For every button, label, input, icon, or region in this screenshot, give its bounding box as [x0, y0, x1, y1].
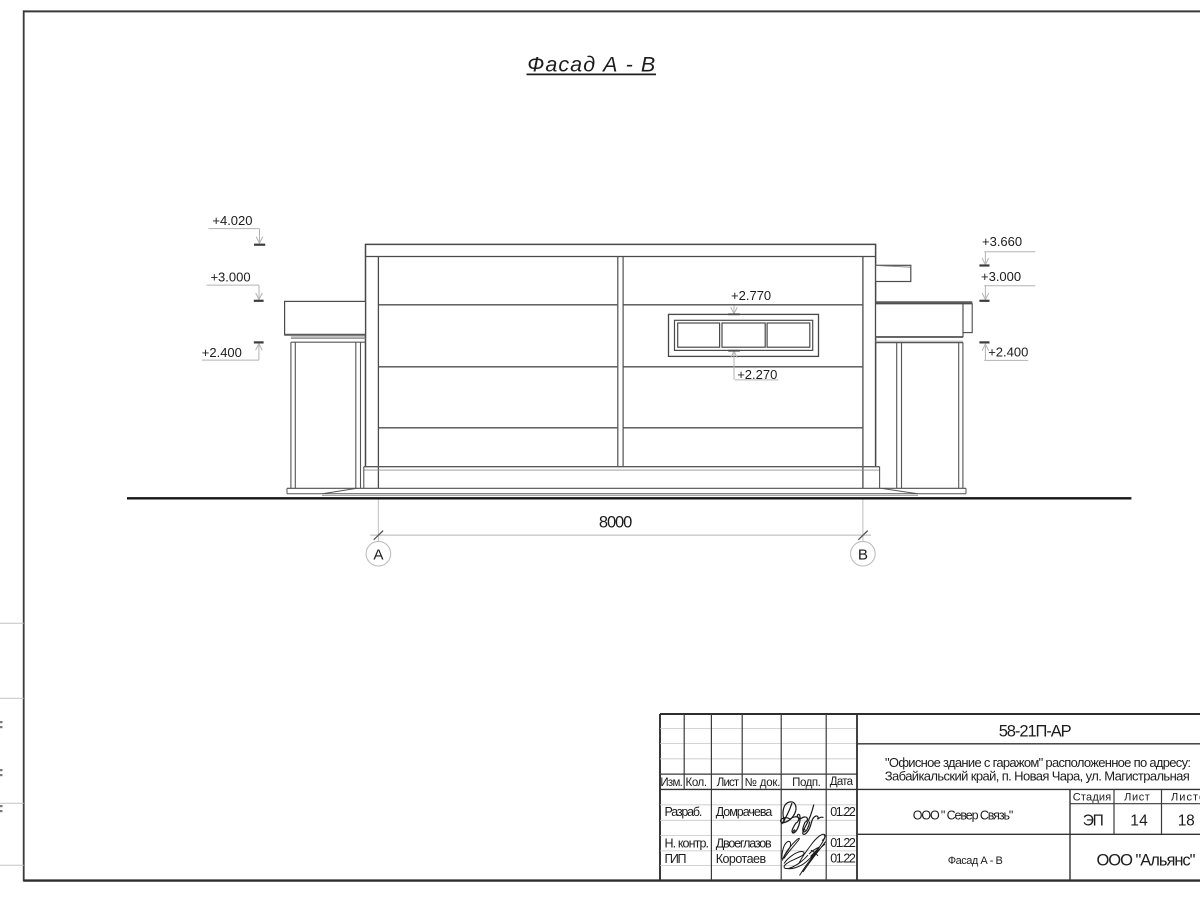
svg-text:ГИП: ГИП — [665, 852, 687, 866]
svg-text:01.22: 01.22 — [830, 851, 856, 865]
svg-text:58-21П-АР: 58-21П-АР — [999, 723, 1072, 741]
svg-text:+2.400: +2.400 — [988, 344, 1028, 359]
svg-text:Разраб.: Разраб. — [665, 805, 703, 819]
svg-text:Изм.: Изм. — [660, 777, 682, 789]
svg-text:Лист: Лист — [717, 777, 740, 789]
svg-text:В: В — [858, 546, 868, 563]
svg-text:ЭП: ЭП — [1083, 813, 1104, 830]
svg-text:18: 18 — [1178, 813, 1195, 830]
svg-text:01.22: 01.22 — [830, 836, 856, 850]
svg-text:Домрачева: Домрачева — [716, 805, 773, 819]
svg-text:01.22: 01.22 — [830, 805, 856, 819]
svg-text:+4.020: +4.020 — [212, 213, 252, 228]
svg-text:Подп.: Подп. — [792, 777, 821, 789]
svg-text:Стадия: Стадия — [1073, 792, 1112, 804]
svg-text:№ док.: № док. — [745, 777, 781, 789]
svg-text:Фасад А - В: Фасад А - В — [527, 53, 655, 77]
svg-text:Фасад А - В: Фасад А - В — [948, 855, 1003, 867]
svg-text:Кол.: Кол. — [686, 777, 708, 789]
svg-text:14: 14 — [1130, 813, 1148, 830]
svg-text:Лист: Лист — [1124, 792, 1150, 804]
svg-text:+2.400: +2.400 — [202, 345, 242, 360]
svg-text:Двоеглазов: Двоеглазов — [716, 837, 772, 851]
svg-text:ООО "Альянс": ООО "Альянс" — [1097, 851, 1196, 869]
svg-text:Забайкальский край, п. Новая Ч: Забайкальский край, п. Новая Чара, ул. М… — [885, 768, 1190, 783]
svg-text:ООО " Север Связь": ООО " Север Связь" — [913, 809, 1014, 823]
svg-text:+3.660: +3.660 — [982, 234, 1022, 249]
svg-text:Листов: Листов — [1171, 792, 1200, 804]
svg-text:+3.000: +3.000 — [981, 269, 1021, 284]
svg-text:+3.000: +3.000 — [210, 269, 250, 284]
svg-text:Коротаев: Коротаев — [716, 852, 767, 866]
svg-text:Дата: Дата — [830, 776, 854, 788]
svg-text:8000: 8000 — [599, 514, 633, 532]
svg-text:А: А — [373, 546, 384, 563]
svg-text:Н. контр.: Н. контр. — [665, 837, 710, 851]
svg-text:+2.770: +2.770 — [731, 288, 771, 303]
